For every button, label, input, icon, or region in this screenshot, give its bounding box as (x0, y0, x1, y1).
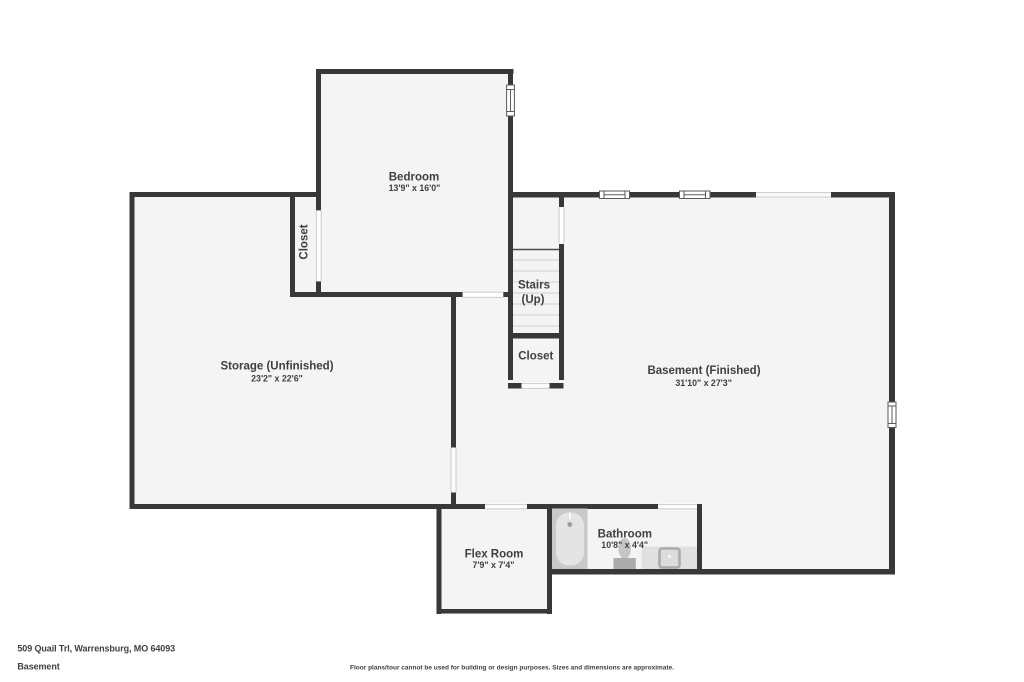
svg-text:13'9" x 16'0": 13'9" x 16'0" (389, 183, 441, 193)
svg-text:(Up): (Up) (522, 294, 545, 306)
svg-text:10'8" x 4'4": 10'8" x 4'4" (601, 540, 648, 550)
svg-text:Closet: Closet (298, 224, 310, 259)
svg-text:Closet: Closet (518, 351, 553, 363)
svg-text:Basement (Finished): Basement (Finished) (647, 365, 760, 377)
svg-text:7'9" x 7'4": 7'9" x 7'4" (473, 560, 515, 570)
svg-text:Floor plans/tour cannot be use: Floor plans/tour cannot be used for buil… (350, 665, 674, 672)
svg-text:Flex Room: Flex Room (465, 549, 524, 561)
svg-text:Basement: Basement (17, 662, 59, 672)
svg-text:31'10" x 27'3": 31'10" x 27'3" (675, 378, 732, 388)
svg-text:Bedroom: Bedroom (389, 172, 439, 184)
svg-text:Storage (Unfinished): Storage (Unfinished) (220, 361, 333, 373)
svg-text:23'2" x 22'6": 23'2" x 22'6" (251, 374, 303, 384)
svg-text:Bathroom: Bathroom (598, 529, 652, 541)
svg-text:Stairs: Stairs (518, 280, 550, 292)
svg-text:509 Quail Trl, Warrensburg, MO: 509 Quail Trl, Warrensburg, MO 64093 (17, 644, 175, 654)
